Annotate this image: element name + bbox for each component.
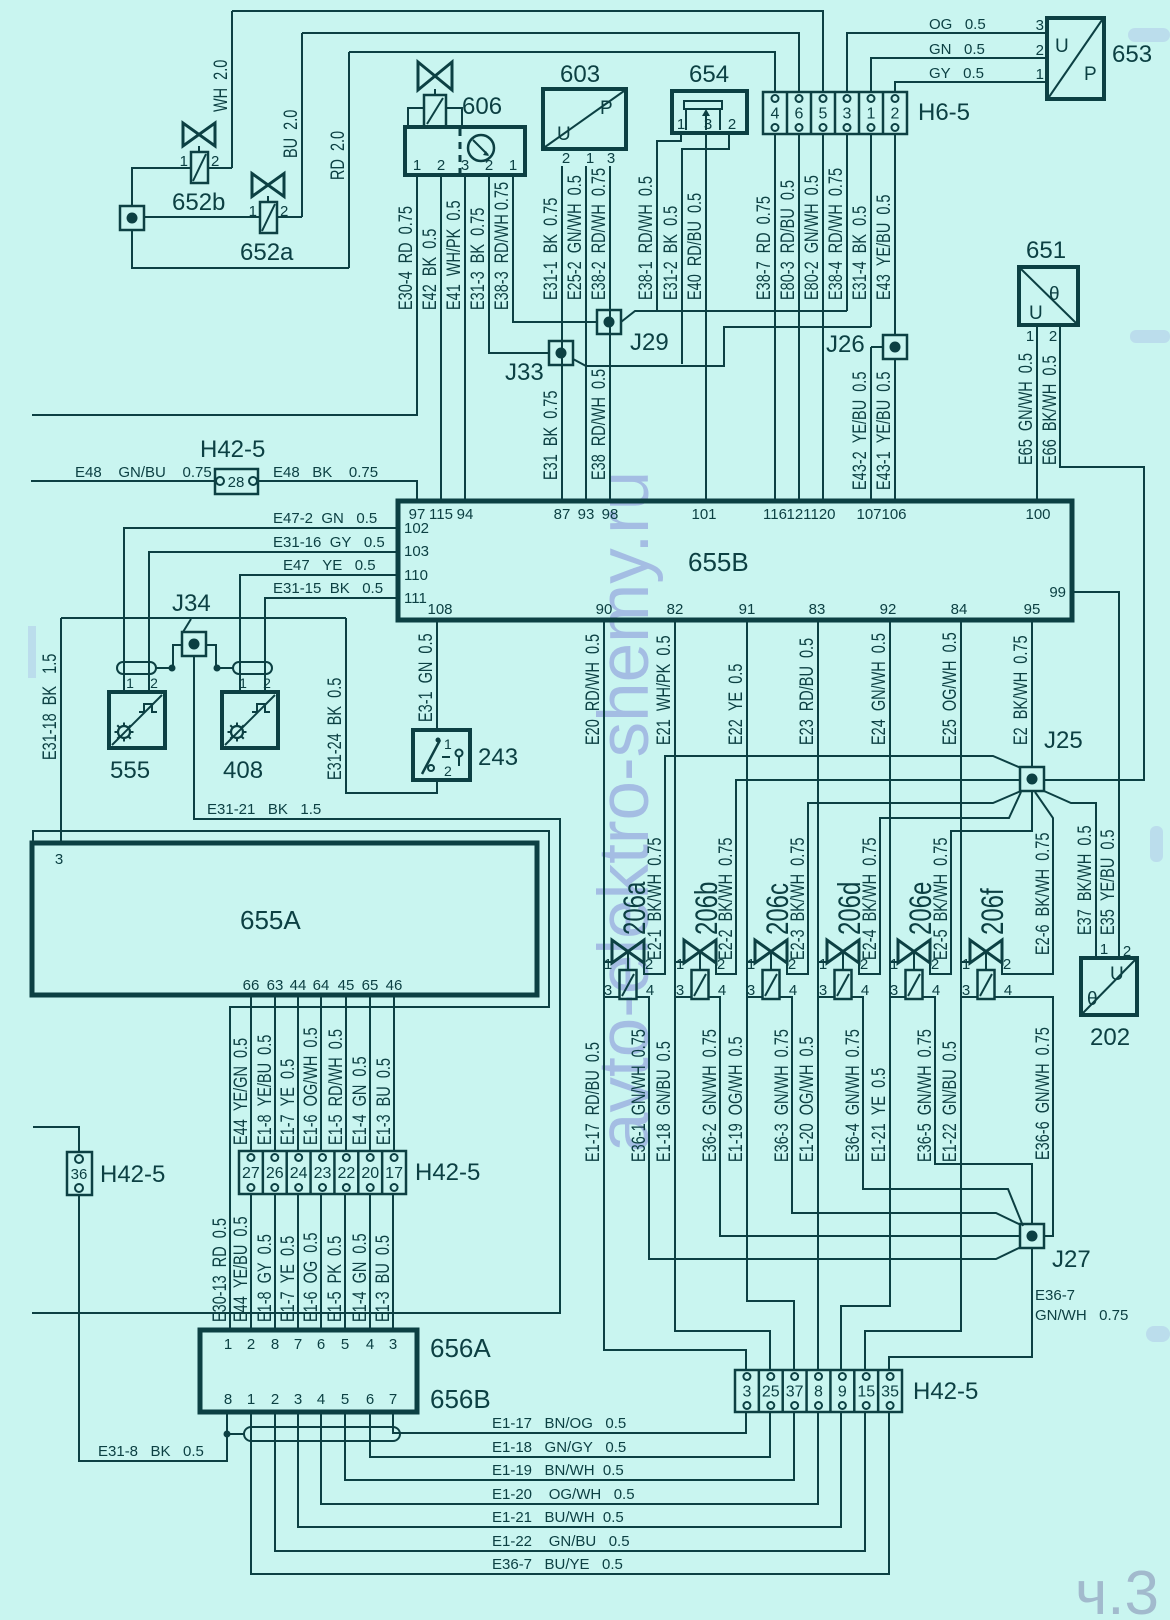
svg-text:1: 1 (677, 116, 685, 133)
svg-text:E38-2 RD/WH 0.75: E38-2 RD/WH 0.75 (588, 168, 609, 300)
svg-text:E80-3 RD/BU 0.5: E80-3 RD/BU 0.5 (777, 180, 798, 300)
svg-text:1: 1 (239, 675, 247, 691)
svg-text:15: 15 (857, 1384, 875, 1401)
svg-text:E2-3 BK/WH 0.75: E2-3 BK/WH 0.75 (787, 838, 808, 960)
svg-text:WH 2.0: WH 2.0 (210, 60, 231, 112)
svg-text:7: 7 (294, 1336, 302, 1353)
svg-text:1: 1 (126, 675, 134, 691)
svg-text:64: 64 (313, 977, 330, 994)
svg-text:25: 25 (762, 1384, 780, 1401)
svg-text:H42-5: H42-5 (415, 1159, 480, 1186)
svg-text:6: 6 (366, 1391, 374, 1408)
svg-text:2: 2 (263, 675, 271, 691)
svg-text:8: 8 (814, 1384, 823, 1401)
svg-text:E31 BK 0.75: E31 BK 0.75 (540, 391, 561, 480)
svg-text:E36-1 GN/WH 0.75: E36-1 GN/WH 0.75 (628, 1029, 649, 1162)
svg-text:E22 YE 0.5: E22 YE 0.5 (725, 664, 746, 745)
svg-text:652a: 652a (240, 239, 294, 266)
svg-text:63: 63 (267, 977, 284, 994)
svg-text:1: 1 (747, 956, 755, 973)
svg-text:2: 2 (247, 1336, 255, 1353)
svg-text:654: 654 (689, 61, 729, 88)
svg-text:E31-18 BK 1.5: E31-18 BK 1.5 (39, 654, 60, 760)
svg-text:26: 26 (266, 1165, 284, 1182)
svg-text:P: P (1084, 64, 1097, 85)
svg-text:65: 65 (362, 977, 379, 994)
svg-text:E31-4 BK 0.5: E31-4 BK 0.5 (849, 206, 870, 300)
svg-text:408: 408 (223, 757, 263, 784)
svg-text:E1-19 OG/WH 0.5: E1-19 OG/WH 0.5 (725, 1036, 746, 1162)
svg-text:20: 20 (361, 1165, 379, 1182)
svg-text:22: 22 (337, 1165, 355, 1182)
svg-text:35: 35 (881, 1384, 899, 1401)
svg-text:90: 90 (596, 601, 613, 618)
svg-text:1: 1 (676, 956, 684, 973)
svg-text:1: 1 (413, 157, 421, 174)
svg-text:E36-7: E36-7 (1035, 1287, 1075, 1304)
svg-text:E20 RD/WH 0.5: E20 RD/WH 0.5 (582, 634, 603, 745)
svg-text:2: 2 (891, 106, 900, 123)
svg-text:E1-18 GN/BU 0.5: E1-18 GN/BU 0.5 (653, 1041, 674, 1162)
svg-text:E36-7 BU/YE 0.5: E36-7 BU/YE 0.5 (492, 1556, 623, 1573)
svg-text:E1-5 RD/WH 0.5: E1-5 RD/WH 0.5 (325, 1029, 346, 1145)
svg-text:E31-1 BK 0.75: E31-1 BK 0.75 (540, 198, 561, 300)
svg-text:E1-21 YE 0.5: E1-21 YE 0.5 (868, 1068, 889, 1162)
svg-text:H42-5: H42-5 (100, 1161, 165, 1188)
svg-text:J33: J33 (505, 359, 544, 386)
svg-text:E48 BK 0.75: E48 BK 0.75 (273, 464, 378, 481)
svg-text:1: 1 (224, 1336, 232, 1353)
svg-text:E35 YE/BU 0.5: E35 YE/BU 0.5 (1097, 829, 1118, 935)
svg-text:E36-6 GN/WH 0.75: E36-6 GN/WH 0.75 (1032, 1027, 1053, 1160)
svg-text:555: 555 (110, 757, 150, 784)
svg-text:5: 5 (341, 1391, 349, 1408)
svg-text:E31-3 BK 0.75: E31-3 BK 0.75 (467, 208, 488, 310)
svg-text:BU 2.0: BU 2.0 (280, 110, 301, 158)
svg-text:8: 8 (271, 1336, 279, 1353)
svg-text:115: 115 (429, 506, 453, 523)
svg-text:E23 RD/BU 0.5: E23 RD/BU 0.5 (796, 638, 817, 745)
svg-text:E25-2 GN/WH 0.5: E25-2 GN/WH 0.5 (564, 175, 585, 300)
svg-text:653: 653 (1112, 41, 1152, 68)
svg-text:2: 2 (271, 1391, 279, 1408)
svg-text:6: 6 (795, 106, 804, 123)
svg-text:U: U (1110, 964, 1124, 985)
svg-text:E43-2 YE/BU 0.5: E43-2 YE/BU 0.5 (849, 372, 870, 490)
svg-text:E30-13 RD 0.5: E30-13 RD 0.5 (209, 1218, 230, 1322)
svg-text:2: 2 (1036, 42, 1044, 59)
svg-text:84: 84 (951, 601, 968, 618)
svg-text:E1-7 YE 0.5: E1-7 YE 0.5 (277, 1236, 298, 1322)
svg-text:108: 108 (427, 601, 452, 618)
svg-text:4: 4 (366, 1336, 374, 1353)
svg-text:1: 1 (247, 1391, 255, 1408)
svg-text:1: 1 (1036, 66, 1044, 83)
svg-text:2: 2 (485, 157, 493, 174)
svg-text:603: 603 (560, 61, 600, 88)
svg-text:E1-20 OG/WH 0.5: E1-20 OG/WH 0.5 (492, 1486, 635, 1503)
svg-text:87: 87 (554, 506, 571, 523)
svg-text:E1-7 YE 0.5: E1-7 YE 0.5 (277, 1059, 298, 1145)
svg-text:206f: 206f (974, 888, 1010, 935)
svg-text:37: 37 (786, 1384, 804, 1401)
svg-text:E43-1 YE/BU 0.5: E43-1 YE/BU 0.5 (873, 372, 894, 490)
svg-text:93: 93 (578, 506, 595, 523)
svg-text:U: U (1029, 303, 1043, 324)
svg-text:GN/WH 0.75: GN/WH 0.75 (1035, 1307, 1128, 1324)
svg-text:2: 2 (444, 763, 452, 779)
svg-text:3: 3 (607, 150, 615, 167)
svg-text:E31-16 GY 0.5: E31-16 GY 0.5 (273, 534, 385, 551)
svg-text:2: 2 (1003, 956, 1011, 973)
svg-text:23: 23 (314, 1165, 332, 1182)
svg-text:J27: J27 (1052, 1246, 1091, 1273)
svg-text:E2-6 BK/WH 0.75: E2-6 BK/WH 0.75 (1032, 833, 1053, 955)
svg-text:E36-3 GN/WH 0.75: E36-3 GN/WH 0.75 (771, 1029, 792, 1162)
svg-text:100: 100 (1025, 506, 1050, 523)
svg-text:1: 1 (444, 736, 452, 752)
svg-text:1: 1 (1026, 328, 1034, 345)
svg-text:E37 BK/WH 0.5: E37 BK/WH 0.5 (1074, 825, 1095, 935)
svg-text:66: 66 (243, 977, 260, 994)
svg-text:H42-5: H42-5 (200, 436, 265, 463)
svg-text:E1-17 BN/OG 0.5: E1-17 BN/OG 0.5 (492, 1415, 626, 1432)
svg-text:46: 46 (386, 977, 403, 994)
svg-text:RD 2.0: RD 2.0 (327, 131, 348, 180)
svg-text:GN 0.5: GN 0.5 (929, 41, 985, 58)
svg-text:E65 GN/WH 0.5: E65 GN/WH 0.5 (1015, 353, 1036, 465)
svg-text:E1-3 BU 0.5: E1-3 BU 0.5 (373, 1058, 394, 1145)
svg-text:E31-24 BK 0.5: E31-24 BK 0.5 (324, 678, 345, 780)
svg-text:3: 3 (1036, 17, 1044, 34)
svg-text:E25 OG/WH 0.5: E25 OG/WH 0.5 (939, 632, 960, 745)
svg-text:E1-4 GN 0.5: E1-4 GN 0.5 (349, 1233, 370, 1322)
svg-text:E42 BK 0.5: E42 BK 0.5 (419, 229, 440, 310)
svg-text:1: 1 (586, 150, 594, 167)
svg-text:656B: 656B (430, 1384, 491, 1414)
svg-text:3: 3 (294, 1391, 302, 1408)
svg-text:E40 RD/BU 0.5: E40 RD/BU 0.5 (684, 193, 705, 300)
svg-text:GY 0.5: GY 0.5 (929, 65, 984, 82)
svg-text:E1-22 GN/BU 0.5: E1-22 GN/BU 0.5 (939, 1041, 960, 1162)
svg-text:3: 3 (461, 157, 469, 174)
svg-text:24: 24 (290, 1165, 308, 1182)
svg-text:3: 3 (55, 851, 63, 868)
svg-text:6: 6 (317, 1336, 325, 1353)
svg-text:1: 1 (962, 956, 970, 973)
svg-text:E2-1 BK/WH 0.75: E2-1 BK/WH 0.75 (644, 838, 665, 960)
svg-text:E38 RD/WH 0.5: E38 RD/WH 0.5 (588, 369, 609, 480)
svg-text:J26: J26 (826, 331, 865, 358)
svg-text:E44 YE/GN 0.5: E44 YE/GN 0.5 (230, 1038, 251, 1145)
svg-text:98: 98 (602, 506, 619, 523)
svg-text:1: 1 (890, 956, 898, 973)
svg-text:E36-4 GN/WH 0.75: E36-4 GN/WH 0.75 (842, 1029, 863, 1162)
svg-text:95: 95 (1024, 601, 1041, 618)
svg-text:3: 3 (742, 1384, 751, 1401)
svg-text:9: 9 (838, 1384, 847, 1401)
svg-text:P: P (600, 98, 613, 119)
svg-text:E1-18 GN/GY 0.5: E1-18 GN/GY 0.5 (492, 1439, 626, 1456)
svg-text:102: 102 (404, 520, 429, 537)
svg-text:652b: 652b (172, 189, 225, 216)
svg-text:1: 1 (1100, 941, 1108, 958)
svg-text:E2-4 BK/WH 0.75: E2-4 BK/WH 0.75 (859, 838, 880, 960)
svg-text:2: 2 (150, 675, 158, 691)
svg-text:U: U (1055, 36, 1069, 57)
svg-text:E47-2 GN 0.5: E47-2 GN 0.5 (273, 510, 377, 527)
svg-text:606: 606 (462, 93, 502, 120)
svg-text:E2-5 BK/WH 0.75: E2-5 BK/WH 0.75 (930, 838, 951, 960)
svg-text:7: 7 (389, 1391, 397, 1408)
svg-text:120: 120 (810, 506, 835, 523)
svg-text:E1-4 GN 0.5: E1-4 GN 0.5 (349, 1056, 370, 1145)
svg-text:E31-2 BK 0.5: E31-2 BK 0.5 (660, 206, 681, 300)
svg-text:J29: J29 (630, 329, 669, 356)
svg-text:E80-2 GN/WH 0.5: E80-2 GN/WH 0.5 (801, 175, 822, 300)
svg-text:E1-17 RD/BU 0.5: E1-17 RD/BU 0.5 (582, 1042, 603, 1162)
svg-text:91: 91 (739, 601, 756, 618)
svg-text:4: 4 (771, 106, 780, 123)
svg-text:E2 BK/WH 0.75: E2 BK/WH 0.75 (1010, 635, 1031, 745)
svg-text:2: 2 (1123, 943, 1131, 960)
svg-text:1: 1 (604, 956, 612, 973)
svg-text:E41 WH/PK 0.5: E41 WH/PK 0.5 (443, 200, 464, 310)
svg-text:1: 1 (867, 106, 876, 123)
svg-text:E38-7 RD 0.75: E38-7 RD 0.75 (753, 196, 774, 300)
svg-text:J25: J25 (1044, 727, 1083, 754)
svg-text:2: 2 (728, 116, 736, 133)
svg-text:107: 107 (856, 506, 881, 523)
svg-text:E38-1 RD/WH 0.5: E38-1 RD/WH 0.5 (635, 176, 656, 300)
svg-text:E36-5 GN/WH 0.75: E36-5 GN/WH 0.75 (914, 1029, 935, 1162)
svg-text:E1-6 OG 0.5: E1-6 OG 0.5 (300, 1233, 321, 1322)
svg-text:28: 28 (228, 474, 245, 491)
svg-text:E2-2 BK/WH 0.75: E2-2 BK/WH 0.75 (715, 838, 736, 960)
svg-text:651: 651 (1026, 237, 1066, 264)
svg-text:E38-3 RD/WH 0.75: E38-3 RD/WH 0.75 (491, 182, 512, 310)
svg-text:99: 99 (1049, 584, 1066, 601)
svg-text:θ: θ (1049, 284, 1060, 305)
svg-text:E31-15 BK 0.5: E31-15 BK 0.5 (273, 580, 383, 597)
svg-text:ч.3: ч.3 (1075, 1559, 1159, 1620)
svg-text:111: 111 (404, 590, 427, 607)
svg-text:82: 82 (667, 601, 684, 618)
svg-text:4: 4 (317, 1391, 325, 1408)
svg-text:8: 8 (224, 1391, 232, 1408)
svg-text:E1-8 GY 0.5: E1-8 GY 0.5 (254, 1234, 275, 1322)
svg-text:83: 83 (809, 601, 826, 618)
svg-text:E24 GN/WH 0.5: E24 GN/WH 0.5 (868, 633, 889, 745)
svg-text:E1-3 BU 0.5: E1-3 BU 0.5 (372, 1235, 393, 1322)
svg-text:E1-6 OG/WH 0.5: E1-6 OG/WH 0.5 (300, 1027, 321, 1145)
svg-text:E1-8 YE/BU 0.5: E1-8 YE/BU 0.5 (254, 1035, 275, 1145)
svg-text:17: 17 (385, 1165, 403, 1182)
svg-text:3: 3 (843, 106, 852, 123)
svg-text:E31-8 BK 0.5: E31-8 BK 0.5 (98, 1443, 204, 1460)
svg-text:656A: 656A (430, 1333, 491, 1363)
svg-text:36: 36 (71, 1166, 88, 1183)
svg-text:116: 116 (763, 506, 787, 523)
svg-text:110: 110 (404, 567, 428, 584)
svg-text:E47 YE 0.5: E47 YE 0.5 (283, 557, 376, 574)
svg-text:H42-5: H42-5 (913, 1378, 978, 1405)
svg-text:E36-2 GN/WH 0.75: E36-2 GN/WH 0.75 (699, 1029, 720, 1162)
svg-text:E30-4 RD 0.75: E30-4 RD 0.75 (395, 206, 416, 310)
svg-text:E21 WH/PK 0.5: E21 WH/PK 0.5 (653, 635, 674, 745)
svg-text:E1-19 BN/WH 0.5: E1-19 BN/WH 0.5 (492, 1462, 624, 1479)
svg-text:H6-5: H6-5 (918, 99, 970, 126)
svg-text:5: 5 (341, 1336, 349, 1353)
svg-text:E38-4 RD/WH 0.75: E38-4 RD/WH 0.75 (825, 168, 846, 300)
svg-text:101: 101 (691, 506, 716, 523)
svg-text:U: U (557, 124, 571, 145)
svg-text:94: 94 (457, 506, 474, 523)
svg-text:655B: 655B (688, 547, 749, 577)
svg-text:3: 3 (389, 1336, 397, 1353)
svg-text:E1-22 GN/BU 0.5: E1-22 GN/BU 0.5 (492, 1533, 630, 1550)
svg-text:E44 YE/BU 0.5: E44 YE/BU 0.5 (230, 1216, 251, 1322)
svg-text:E1-5 PK 0.5: E1-5 PK 0.5 (324, 1236, 345, 1322)
svg-text:121: 121 (786, 506, 811, 523)
svg-text:2: 2 (562, 150, 570, 167)
svg-text:5: 5 (819, 106, 828, 123)
svg-text:J34: J34 (172, 590, 211, 617)
svg-text:45: 45 (338, 977, 355, 994)
svg-text:E3-1 GN 0.5: E3-1 GN 0.5 (415, 633, 436, 722)
svg-text:θ: θ (1087, 989, 1098, 1010)
svg-text:44: 44 (290, 977, 307, 994)
svg-text:OG 0.5: OG 0.5 (929, 16, 986, 33)
svg-text:202: 202 (1090, 1024, 1130, 1051)
svg-text:1: 1 (819, 956, 827, 973)
svg-text:E1-21 BU/WH 0.5: E1-21 BU/WH 0.5 (492, 1509, 624, 1526)
svg-text:27: 27 (242, 1165, 260, 1182)
svg-text:106: 106 (881, 506, 906, 523)
svg-text:3: 3 (704, 116, 712, 133)
svg-text:2: 2 (437, 157, 445, 174)
svg-text:1: 1 (509, 157, 517, 174)
svg-text:243: 243 (478, 744, 518, 771)
svg-text:E43 YE/BU 0.5: E43 YE/BU 0.5 (873, 194, 894, 300)
svg-text:E66 BK/WH 0.5: E66 BK/WH 0.5 (1039, 355, 1060, 465)
svg-text:103: 103 (404, 543, 429, 560)
svg-text:2: 2 (1049, 328, 1057, 345)
svg-text:E31-21 BK 1.5: E31-21 BK 1.5 (207, 801, 321, 818)
svg-text:E1-20 OG/WH 0.5: E1-20 OG/WH 0.5 (796, 1036, 817, 1162)
svg-text:E48 GN/BU 0.75: E48 GN/BU 0.75 (75, 464, 212, 481)
svg-text:655A: 655A (240, 905, 301, 935)
svg-text:92: 92 (880, 601, 897, 618)
